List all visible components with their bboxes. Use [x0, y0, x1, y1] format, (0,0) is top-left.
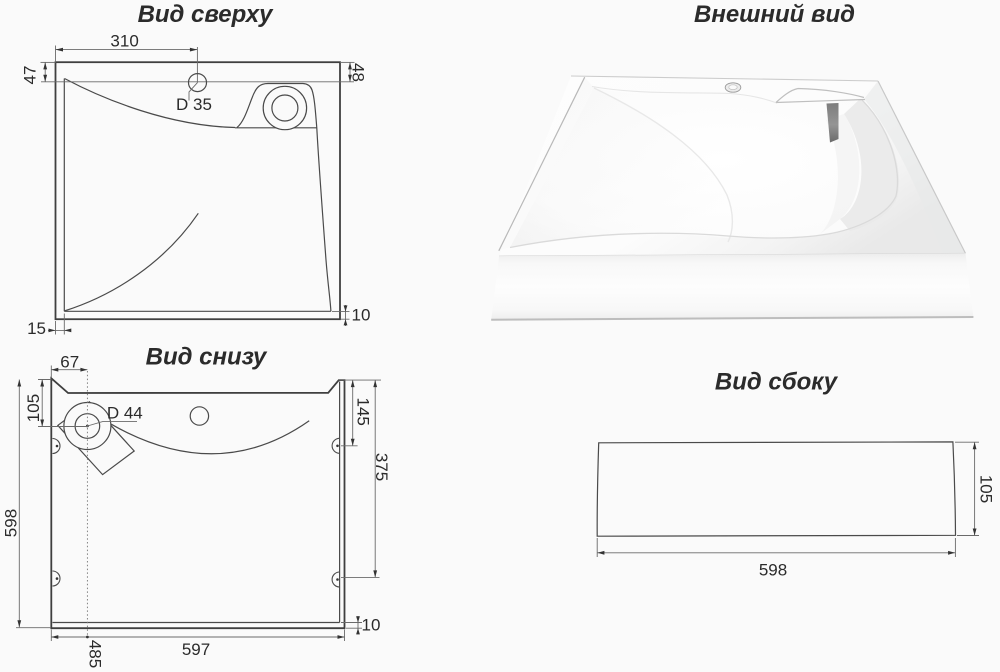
svg-text:310: 310 [110, 32, 138, 51]
svg-text:10: 10 [362, 616, 381, 635]
svg-text:598: 598 [759, 561, 787, 580]
svg-text:485: 485 [85, 640, 104, 668]
svg-text:598: 598 [2, 509, 21, 537]
svg-text:D 44: D 44 [107, 404, 143, 423]
svg-text:Вид сверху: Вид сверху [138, 1, 275, 28]
svg-text:375: 375 [372, 453, 391, 481]
svg-text:Вид снизу: Вид снизу [146, 344, 268, 371]
svg-text:10: 10 [352, 305, 371, 324]
svg-text:67: 67 [60, 353, 79, 372]
svg-text:47: 47 [21, 66, 40, 85]
svg-text:D 35: D 35 [176, 95, 212, 114]
svg-text:597: 597 [182, 640, 210, 659]
svg-text:15: 15 [27, 319, 46, 338]
svg-text:105: 105 [977, 475, 996, 503]
svg-text:Внешний вид: Внешний вид [694, 1, 855, 28]
svg-text:105: 105 [24, 394, 43, 422]
svg-text:Вид сбоку: Вид сбоку [715, 369, 839, 396]
svg-text:145: 145 [353, 398, 372, 426]
svg-text:48: 48 [349, 63, 368, 82]
